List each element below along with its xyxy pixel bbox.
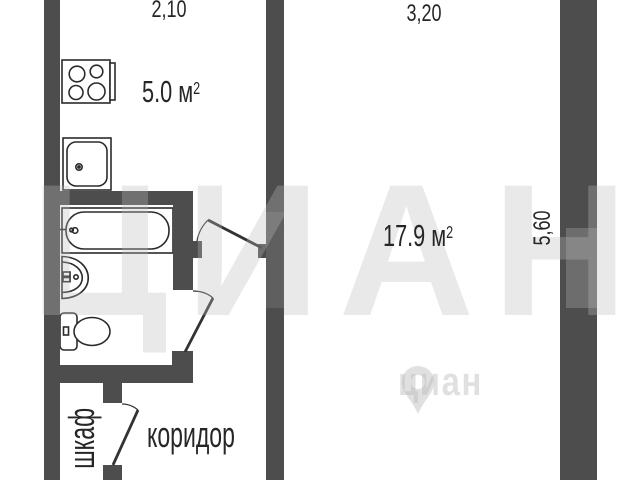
entrance-door-left-jamb: [193, 241, 202, 258]
entrance-door-leaf: [208, 220, 262, 248]
watermark-wall-highlight: [266, 212, 284, 308]
bathroom-door-leaf: [185, 298, 213, 352]
washbasin: [62, 257, 88, 299]
closet-door-arc: [122, 404, 138, 410]
room-area-label: 17.9 м2: [383, 218, 453, 254]
dimension-top-right: 3,20: [402, 0, 447, 28]
left-wall: [44, 0, 60, 480]
entrance-door-arc: [197, 220, 208, 241]
room-area-sup: 2: [446, 222, 453, 242]
bathroom-door-jamb: [172, 351, 193, 366]
toilet: [60, 313, 110, 350]
bathroom-north-wall: [58, 191, 193, 205]
closet-door-leaf: [113, 410, 138, 465]
bathtub: [58, 208, 173, 253]
closet-door-jamb: [103, 465, 122, 480]
room-area-value: 17.9 м: [383, 218, 446, 253]
kitchen-area-value: 5.0 м: [142, 74, 193, 109]
bathroom-door-arc: [193, 291, 213, 298]
bathroom-east-wall: [173, 205, 193, 290]
kitchen-area-sup: 2: [193, 78, 200, 98]
dimension-top-left: 2,10: [147, 0, 192, 24]
corridor-label: коридор: [147, 414, 235, 456]
floor-plan: ЦИАН циан 2,10 3,20 5,60 5.0 м2 17.9 м2 …: [0, 0, 640, 480]
dimension-right-side: 5,60: [529, 206, 557, 251]
watermark-wall-highlight: [566, 228, 597, 308]
closet-wall-stub: [103, 383, 122, 403]
stove: [62, 60, 115, 103]
kitchen-area-label: 5.0 м2: [142, 74, 200, 110]
bathroom-south-wall: [58, 365, 193, 383]
kitchen-sink: [63, 138, 111, 190]
closet-label: шкаф: [66, 411, 98, 469]
